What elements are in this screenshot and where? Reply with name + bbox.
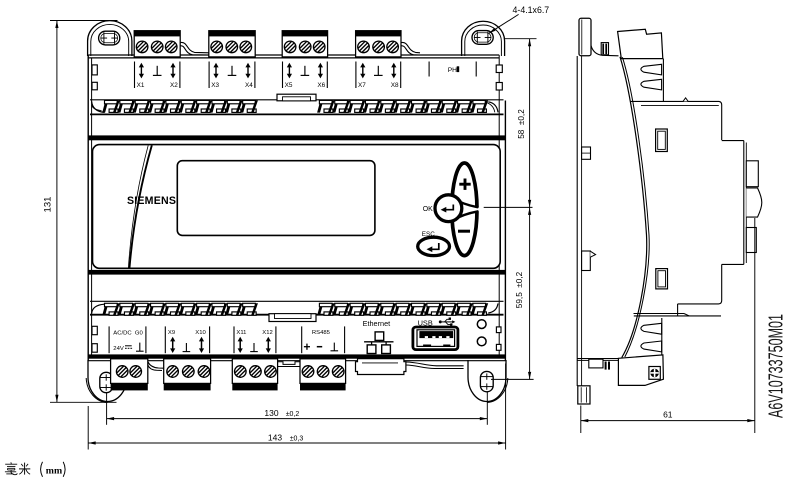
svg-text:X7: X7 [358,82,366,89]
svg-text:X5: X5 [285,82,293,89]
svg-text:Ethernet: Ethernet [363,319,391,328]
svg-text:A6V10733750M01: A6V10733750M01 [765,314,788,418]
svg-text:X11: X11 [236,330,246,336]
svg-text:X1: X1 [137,82,145,89]
svg-text:143: 143 [268,432,282,442]
svg-text:58 ±0,2: 58 ±0,2 [517,109,526,139]
svg-text:X9: X9 [168,330,175,336]
svg-text:ESC: ESC [422,231,435,238]
svg-text:SIEMENS: SIEMENS [127,195,176,207]
svg-text:4-4.1x6.7: 4-4.1x6.7 [513,5,550,15]
svg-text:X4: X4 [245,82,253,89]
svg-text:±0,2: ±0,2 [286,411,300,418]
svg-text:AC/DC G0: AC/DC G0 [113,330,143,336]
svg-text:X3: X3 [211,82,219,89]
svg-text:131: 131 [43,197,54,213]
svg-text:X8: X8 [391,82,399,89]
svg-text:RS485: RS485 [312,330,331,336]
svg-text:mm: mm [46,465,62,476]
svg-text:61: 61 [663,410,673,420]
svg-text:59,5 ±0,2: 59,5 ±0,2 [515,271,524,308]
svg-text:X12: X12 [262,330,272,336]
svg-text:X10: X10 [195,330,206,336]
svg-text:X2: X2 [170,82,178,89]
svg-text:PH: PH [448,67,457,74]
svg-text:±0,3: ±0,3 [290,435,304,442]
svg-text:130: 130 [264,408,278,418]
svg-text:OK: OK [423,206,433,213]
svg-text:X6: X6 [317,82,325,89]
svg-text:24V: 24V [113,346,124,352]
